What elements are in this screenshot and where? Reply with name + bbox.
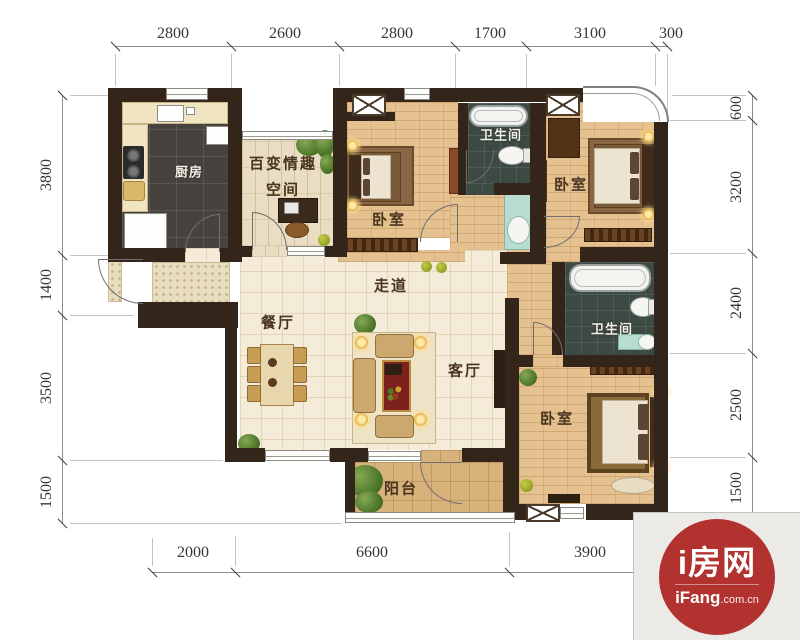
bedroom-bottom-plant-2 [520,479,533,492]
bedroom-right-headboard [642,144,654,208]
wall-bathroom-right-bottom-b [563,355,668,367]
living-window [265,450,330,461]
dining-bowl-1 [268,358,277,367]
flex-door-leaf [252,212,253,250]
dim-right-3: 2400 [729,287,745,319]
extension-line [70,315,134,316]
bathroom-top-door-leaf [466,150,467,183]
ifang-logo-box: i房网 iFang.com.cn [633,512,800,640]
corridor-plant-1 [421,261,432,272]
dining-chair-4 [293,347,307,364]
dim-top-1: 2800 [157,26,189,42]
bedroom-bottom-window [560,507,584,519]
flex-pot-plant [318,234,330,246]
wall-dining-left [225,318,237,462]
extension-line [70,255,108,256]
flex-space-window-bottom [287,246,325,256]
wall-entry-bottom [138,302,238,328]
ifang-logo-circle: i房网 iFang.com.cn [659,519,775,635]
bedroom-right-pillow-1 [630,152,639,174]
dim-top-3: 2800 [381,26,413,42]
extension-line [115,54,116,86]
bedroom-top-window [404,88,430,100]
corridor-label: 走道 [374,275,408,296]
bathroom-top-label: 卫生间 [480,125,522,144]
bedroom-bottom-pillow-1 [638,404,649,430]
dim-line-right [752,95,753,519]
bedroom-bottom-door-patch [533,355,563,367]
flex-space-label-line1: 百变情趣 [249,153,317,174]
wall-kitchen-left [108,88,122,260]
dim-bottom-2: 6600 [356,545,388,561]
bedroom-top-threshold-rug [338,238,418,252]
extension-line [670,120,746,121]
bedroom-right-lamp-1 [643,131,654,142]
flower-arrangement [385,384,404,402]
wall-kitchen-right [228,88,242,258]
bedroom-bottom-bench [611,477,655,494]
wash-basin [507,216,530,244]
floor-plan: 厨房 百变情趣 空间 卧室 卫生间 卧室 卫生间 走道 餐厅 客厅 卧室 阳台 … [0,0,800,640]
bedroom-bottom-door-leaf [533,322,534,355]
dim-line-top [115,46,667,47]
kitchen-appliance [206,126,229,145]
wall-kitchen-bottom-right [220,248,242,262]
bathroom-right-tub [569,264,651,292]
living-label: 客厅 [448,360,482,381]
extension-line [655,54,656,86]
dim-bottom-1: 2000 [177,545,209,561]
coffee-table [385,364,402,375]
balcony-label: 阳台 [384,478,418,499]
bedroom-right-pillow-2 [630,178,639,200]
sofa-lamp-4 [414,413,427,426]
bedroom-top-headboard [349,155,361,199]
extension-line [339,54,340,86]
ifang-logo-title: i房网 [678,546,756,579]
extension-line [670,253,746,254]
wall-flex-bottom-left [242,246,252,257]
flex-space-window-top [242,131,333,140]
dim-right-5: 1500 [729,472,745,504]
stove-burner-1 [127,149,140,162]
bedroom-top-lamp-2 [347,200,358,211]
bedroom-top-label: 卧室 [372,209,406,230]
dim-right-1: 600 [729,96,745,120]
dim-left-4: 1500 [39,476,55,508]
kitchen-label: 厨房 [175,162,203,181]
bedroom-top-pillow-1 [363,158,370,175]
extension-line [70,95,108,96]
extension-line [509,532,510,566]
extension-line [670,353,746,354]
bedroom-top-pillow-2 [363,179,370,196]
bedroom-top-lamp-1 [347,140,358,151]
extension-line [70,523,342,524]
extension-line [455,54,456,88]
balcony-window-top [368,451,421,461]
bathroom-top-door-patch [466,183,494,195]
ifang-logo-suffix: .com.cn [720,594,759,606]
extension-line [526,54,527,88]
extension-line [70,460,223,461]
bedroom-top-door-leaf [457,204,458,242]
dim-right-4: 2500 [729,389,745,421]
sofa-lamp-2 [414,336,427,349]
entry-mat [152,262,230,304]
dim-left-3: 3500 [39,372,55,404]
wall-balcony-left [345,460,355,516]
wall-bathroom-top-bottom-a [458,183,466,195]
dim-top-2: 2600 [269,26,301,42]
bathroom-right-label: 卫生间 [591,319,633,338]
bedroom-right-label: 卧室 [554,174,588,195]
corridor-plant-2 [436,262,447,273]
balcony-door-patch [421,450,463,462]
flue-box-bedroom-top [352,94,386,116]
bedroom-right-lamp-2 [643,209,654,220]
stove-burner-2 [127,165,140,178]
dim-top-4: 1700 [474,26,506,42]
wall-aqua-bottom [500,252,546,264]
bedroom-right-wardrobe [548,118,580,158]
entry-door-leaf [98,259,143,260]
kitchen-door-leaf [219,214,220,252]
tv-cabinet-bedroom [548,494,580,503]
kitchen-basket [123,181,145,201]
dim-line-bottom [152,572,672,573]
flex-space-label-line2: 空间 [266,179,300,200]
extension-line [667,54,668,116]
entry-door-arc [98,259,143,304]
dining-chair-2 [247,366,261,383]
dim-bottom-3: 3900 [574,545,606,561]
sofa-lamp-3 [355,413,368,426]
wall-living-bottom-c [462,448,505,462]
dining-chair-3 [247,385,261,402]
bedroom-right-threshold-rug [584,228,652,242]
flue-box-bedroom-right [546,94,580,116]
kitchen-dish-rack [186,107,195,115]
dim-top-6: 300 [659,26,683,42]
flex-chair [285,222,309,238]
extension-line [235,536,236,566]
ifang-logo-brand: iFang [675,588,720,607]
bedroom-bottom-label: 卧室 [540,408,574,429]
sofa-lamp-1 [355,336,368,349]
bedroom-right-door-leaf [544,216,580,217]
extension-line [670,457,746,458]
bedroom-bottom-plant-1 [519,369,537,386]
kitchen-sink [157,105,184,122]
wall-living-bedroom-divider [505,298,519,460]
sofa-top [375,334,414,358]
balcony-plant-2 [355,491,383,513]
dim-left-1: 3800 [39,159,55,191]
sofa-left [353,358,376,413]
kitchen-window [166,88,208,100]
flue-box-bottom [526,504,560,522]
sofa-bottom [375,415,414,438]
dining-label: 餐厅 [261,312,295,333]
dining-chair-1 [247,347,261,364]
dining-chair-6 [293,385,307,402]
tv-cabinet-living [494,350,505,408]
bedroom-right-door-patch [546,247,580,262]
flex-desk-screen [284,202,299,214]
living-plant [354,314,376,334]
extension-line [152,538,153,566]
dim-left-2: 1400 [39,269,55,301]
bedroom-bottom-pillow-2 [638,434,649,460]
dim-right-2: 3200 [729,171,745,203]
bathroom-top-toilet [498,146,526,165]
dining-bowl-2 [268,378,277,387]
kitchen-fridge [124,213,167,250]
dim-top-5: 3100 [574,26,606,42]
dining-chair-5 [293,366,307,383]
wall-right-outer [654,118,668,520]
balcony-window-bottom [345,512,515,523]
balcony-door-leaf [420,462,462,463]
ifang-logo-subtitle: iFang.com.cn [675,584,759,607]
dining-table [260,344,294,406]
